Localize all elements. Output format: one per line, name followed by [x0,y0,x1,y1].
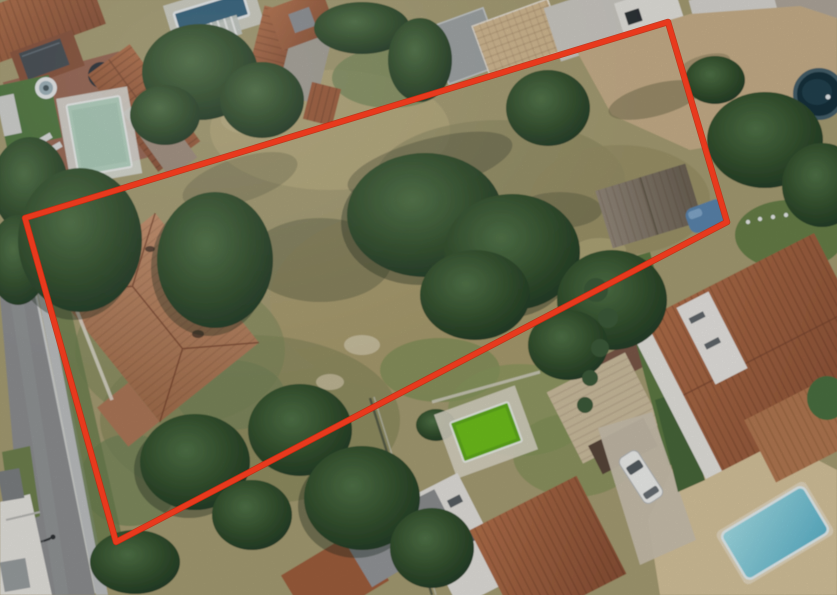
satellite-image [0,0,837,595]
image-grain [0,0,837,595]
aerial-scene [0,0,837,595]
